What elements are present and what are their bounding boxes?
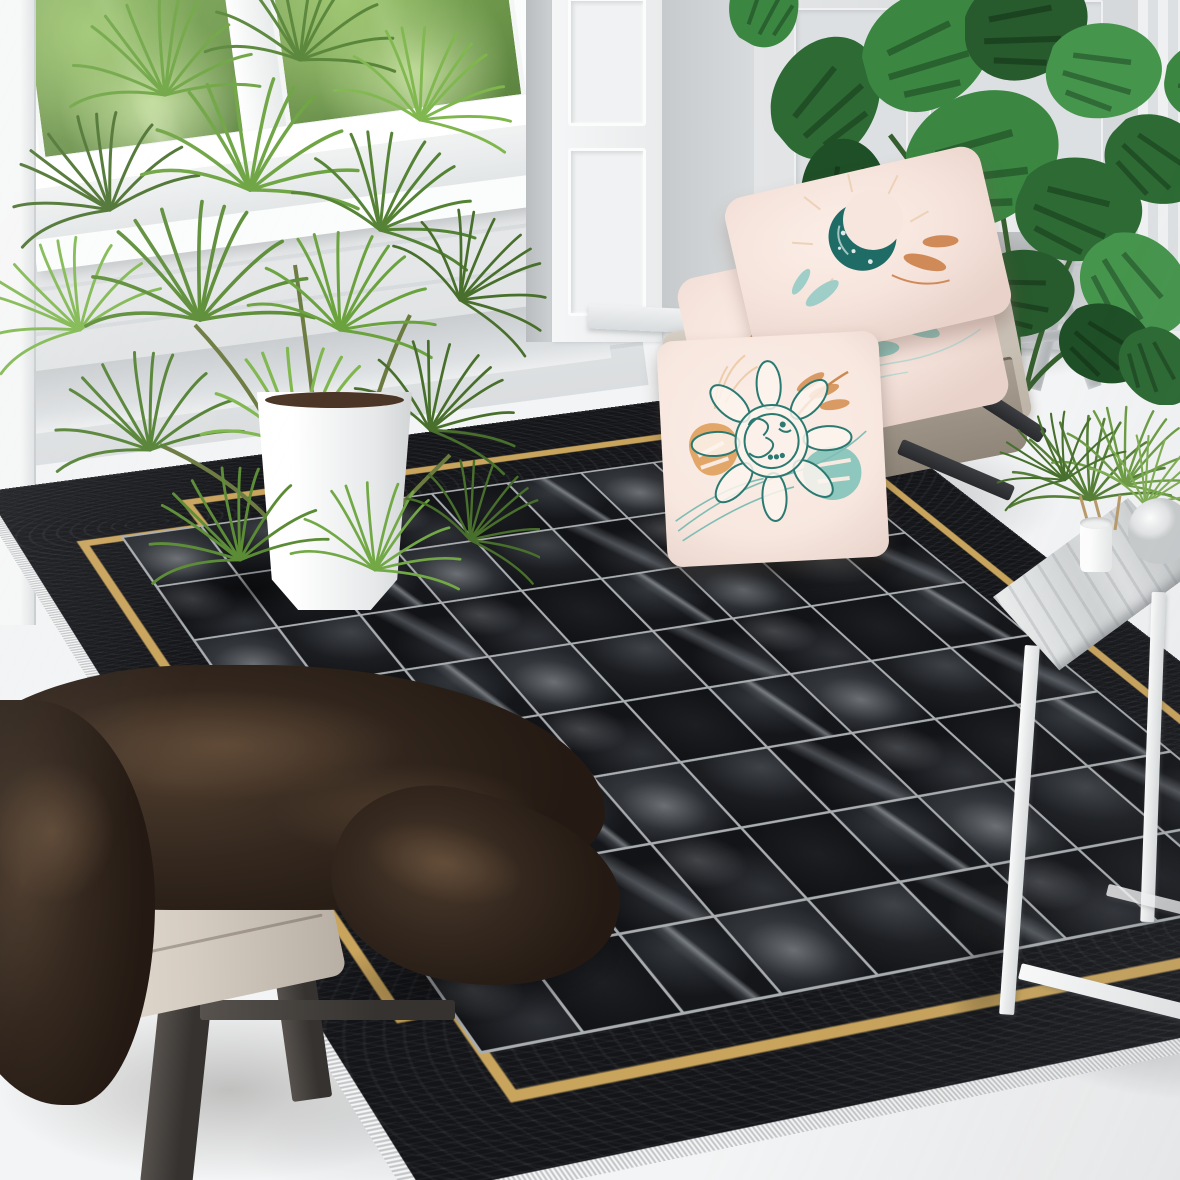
pillow-mandala	[656, 330, 890, 567]
stool-leg	[140, 993, 212, 1180]
pillow-mandala-motif	[656, 330, 890, 567]
candle	[1080, 522, 1112, 572]
vase	[1128, 498, 1180, 564]
palm-front-fronds	[120, 420, 540, 650]
stool-rail	[200, 1000, 455, 1020]
scene-photo	[0, 0, 1180, 1180]
